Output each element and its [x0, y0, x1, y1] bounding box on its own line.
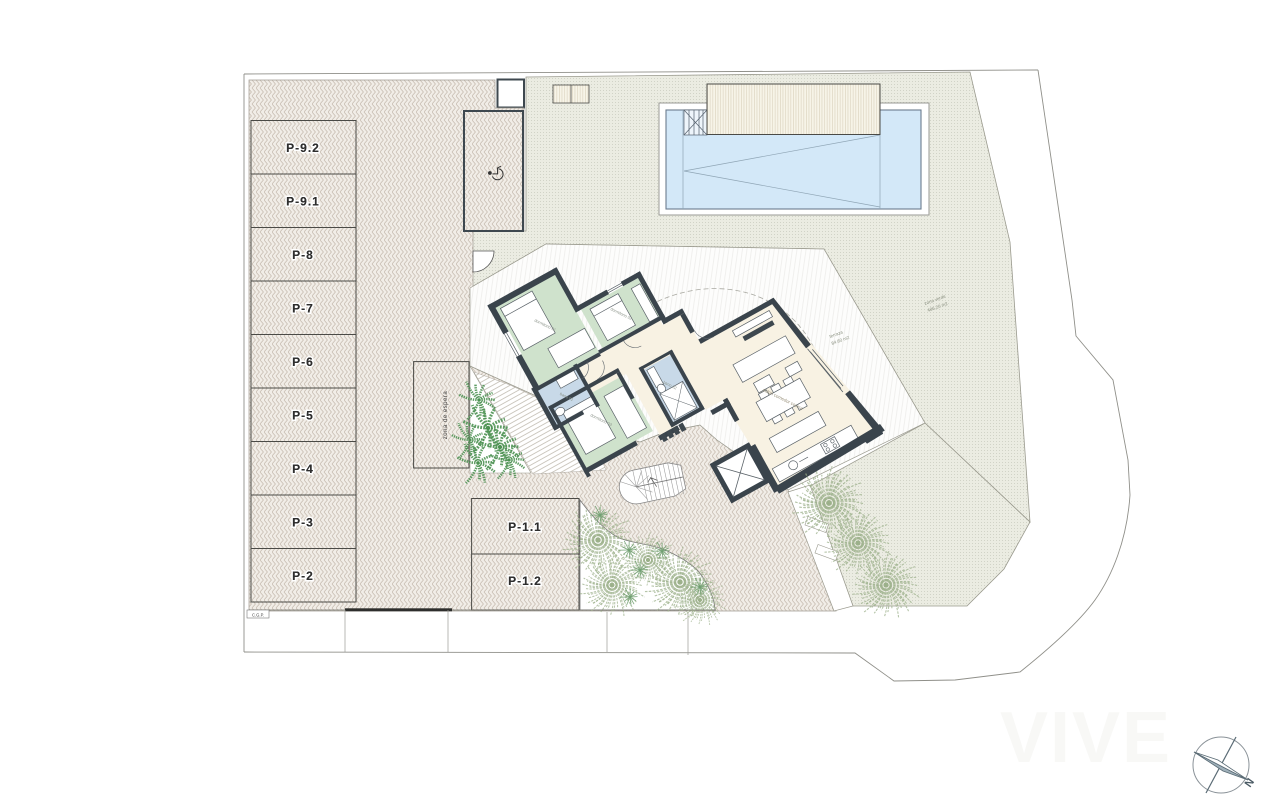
svg-text:P-9.2: P-9.2	[286, 141, 320, 155]
svg-text:P-4: P-4	[292, 462, 314, 476]
svg-text:zona de espera: zona de espera	[443, 391, 449, 440]
svg-text:VIVE: VIVE	[1000, 698, 1172, 778]
svg-text:P-8: P-8	[292, 248, 314, 262]
svg-text:C.G.P.: C.G.P.	[252, 612, 264, 617]
svg-text:P-7: P-7	[292, 302, 314, 316]
svg-text:N: N	[1243, 776, 1257, 789]
svg-text:P-1.1: P-1.1	[508, 520, 542, 534]
svg-text:P-2: P-2	[292, 569, 314, 583]
svg-text:P-6: P-6	[292, 355, 314, 369]
svg-text:P-3: P-3	[292, 516, 314, 530]
svg-text:P-9.1: P-9.1	[286, 195, 320, 209]
svg-text:P-5: P-5	[292, 409, 314, 423]
svg-text:P-1.2: P-1.2	[508, 574, 542, 588]
